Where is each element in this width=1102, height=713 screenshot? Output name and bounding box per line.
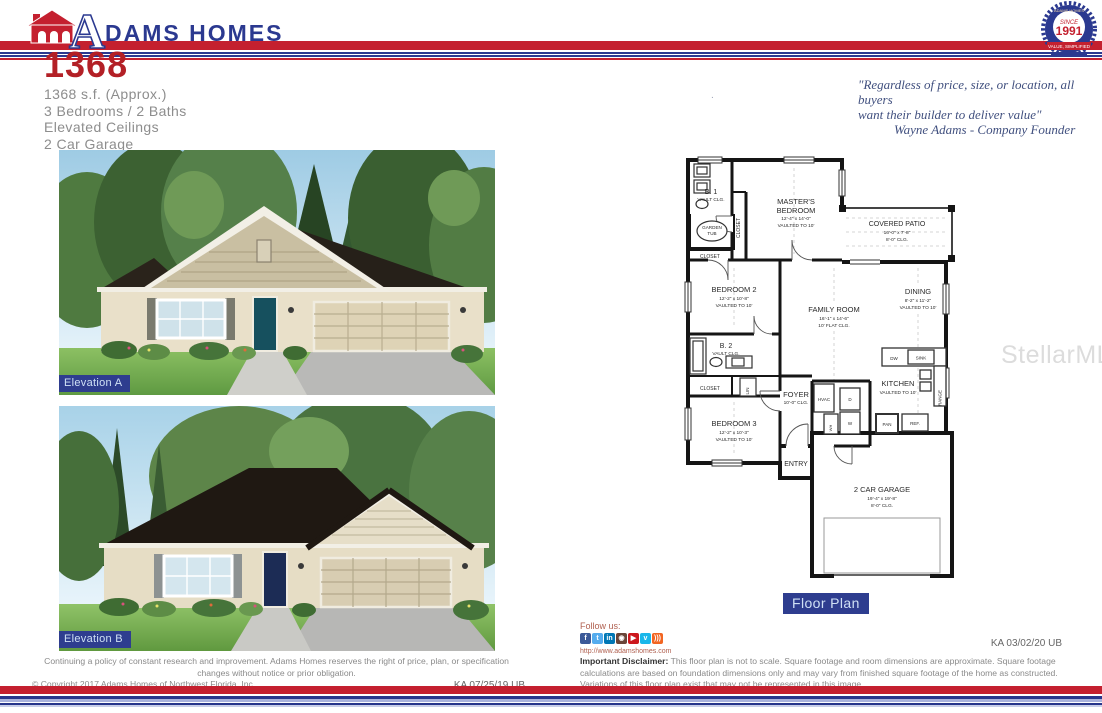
brand-letter-a: A — [69, 4, 105, 54]
label-bed3-closet: CLOSET — [700, 386, 720, 392]
linkedin-icon[interactable]: in — [604, 633, 615, 644]
room-clg-bath2: VAULT CLG. — [712, 351, 739, 357]
label-hall-closet: CLOSET — [700, 254, 720, 260]
label-water-heater: WH — [828, 425, 833, 432]
room-label-master-1: MASTER'S — [777, 197, 815, 206]
brand-wordmark: DAMS HOMES — [105, 20, 283, 46]
room-dims-dining: 8'-2" x 11'-2" — [905, 298, 932, 304]
adams-homes-logo-art: A DAMS HOMES — [25, 4, 325, 54]
vimeo-icon[interactable]: v — [640, 633, 651, 644]
room-clg-patio: 8'-0" CLG. — [886, 237, 908, 243]
room-clg-bed3: VAULTED TO 10' — [716, 437, 753, 443]
instagram-icon[interactable]: ◉ — [616, 633, 627, 644]
front-door — [253, 297, 277, 351]
follow-us-label: Follow us: — [580, 621, 621, 631]
floor-plan-art: B. 1 VAULT CLG. GARDEN TUB CLOSET CLOSET… — [684, 156, 960, 584]
stray-mark: . — [711, 90, 714, 101]
label-linen: LIN — [745, 387, 750, 394]
room-clg-bed2: VAULTED TO 10' — [716, 303, 753, 309]
room-label-family: FAMILY ROOM — [808, 305, 859, 314]
room-clg-kitchen: VAULTED TO 10' — [880, 390, 917, 396]
room-dims-bed3: 12'-2" x 10'-3" — [719, 430, 749, 436]
floor-plan: B. 1 VAULT CLG. GARDEN TUB CLOSET CLOSET… — [684, 156, 960, 584]
quote-line-2: want their builder to deliver value" — [858, 108, 1102, 123]
label-tub: TUB — [707, 231, 716, 236]
elevation-b-label: Elevation B — [59, 631, 131, 648]
label-hvac: HVAC — [818, 397, 831, 402]
elevation-a-art — [59, 150, 495, 395]
room-dims-family: 16'-1" x 14'-6" — [819, 316, 849, 322]
badge-banner: VALUE, SIMPLIFIED — [1048, 44, 1091, 49]
room-dims-patio: 16'-0" x 7'-8" — [884, 230, 911, 236]
twitter-icon[interactable]: t — [592, 633, 603, 644]
label-master-closet: CLOSET — [736, 218, 742, 238]
spec-beds-baths: 3 Bedrooms / 2 Baths — [44, 103, 187, 120]
label-sink: SINK — [916, 356, 927, 361]
room-clg-family: 10' FLAT CLG. — [818, 323, 849, 329]
badge-arc-text: ADAMS HOMES — [1054, 8, 1084, 13]
floor-plan-label: Floor Plan — [783, 593, 869, 614]
since-1991-badge: ADAMS HOMES SINCE 1991 VALUE, SIMPLIFIED — [1041, 1, 1097, 64]
room-label-dining: DINING — [905, 287, 931, 296]
room-label-kitchen: KITCHEN — [882, 379, 915, 388]
elevation-b-art — [59, 406, 495, 651]
room-clg-garage: 8'-0" CLG. — [871, 503, 893, 509]
elevation-a-image: Elevation A — [59, 150, 495, 395]
elevation-b-image: Elevation B — [59, 406, 495, 651]
plan-revision-code: KA 03/02/20 UB — [940, 638, 1062, 649]
spec-sqft: 1368 s.f. (Approx.) — [44, 86, 187, 103]
social-icons: f t in ◉ ▶ v ))) — [580, 633, 663, 644]
room-dims-master: 12'-4" x 14'-0" — [781, 216, 811, 222]
room-label-patio: COVERED PATIO — [869, 221, 926, 228]
room-label-foyer: FOYER — [783, 390, 809, 399]
disclaimer-heading: Important Disclaimer: — [580, 656, 668, 666]
badge-year: 1991 — [1056, 24, 1083, 38]
room-dims-bed2: 12'-2" x 10'-8" — [719, 296, 749, 302]
founder-quote: "Regardless of price, size, or location,… — [858, 78, 1102, 138]
rss-icon[interactable]: ))) — [652, 633, 663, 644]
label-refrigerator: REF. — [910, 421, 920, 426]
label-pantry: PAN — [883, 422, 892, 427]
room-label-bath1-clg: VAULT CLG. — [697, 197, 724, 203]
front-door — [263, 552, 287, 607]
footer-stripes — [0, 686, 1102, 707]
room-label-bed2: BEDROOM 2 — [711, 285, 756, 294]
label-garden: GARDEN — [702, 225, 722, 230]
room-clg-dining: VAULTED TO 10' — [900, 305, 937, 311]
spec-ceilings: Elevated Ceilings — [44, 119, 187, 136]
room-dims-garage: 19'-4" x 19'-8" — [867, 496, 897, 502]
quote-line-1: "Regardless of price, size, or location,… — [858, 78, 1102, 108]
room-clg-master: VAULTED TO 10' — [778, 223, 815, 229]
room-label-bed3: BEDROOM 3 — [711, 419, 756, 428]
title-block: 1368 1368 s.f. (Approx.) 3 Bedrooms / 2 … — [44, 47, 187, 152]
website-url[interactable]: http://www.adamshomes.com — [580, 648, 671, 655]
label-entry: ENTRY — [784, 461, 808, 468]
room-label-garage: 2 CAR GARAGE — [854, 485, 910, 494]
room-clg-foyer: 10'-0" CLG. — [784, 400, 809, 406]
room-label-bath1: B. 1 — [705, 189, 718, 196]
youtube-icon[interactable]: ▶ — [628, 633, 639, 644]
adams-homes-logo: A DAMS HOMES — [25, 4, 325, 59]
policy-statement: Continuing a policy of constant research… — [28, 656, 525, 679]
badge-art: ADAMS HOMES SINCE 1991 VALUE, SIMPLIFIED — [1041, 1, 1097, 59]
flyer-page: { "header": { "brand_a": "A", "brand_res… — [0, 0, 1102, 713]
stellar-mls-watermark: StellarMLS — [1001, 341, 1102, 370]
label-dishwasher: DW — [890, 356, 898, 361]
facebook-icon[interactable]: f — [580, 633, 591, 644]
quote-attribution: Wayne Adams - Company Founder — [858, 123, 1102, 138]
room-label-master-2: BEDROOM — [777, 206, 816, 215]
elevation-a-label: Elevation A — [59, 375, 130, 392]
label-range: RANGE — [938, 390, 943, 406]
room-label-bath2: B. 2 — [720, 343, 733, 350]
